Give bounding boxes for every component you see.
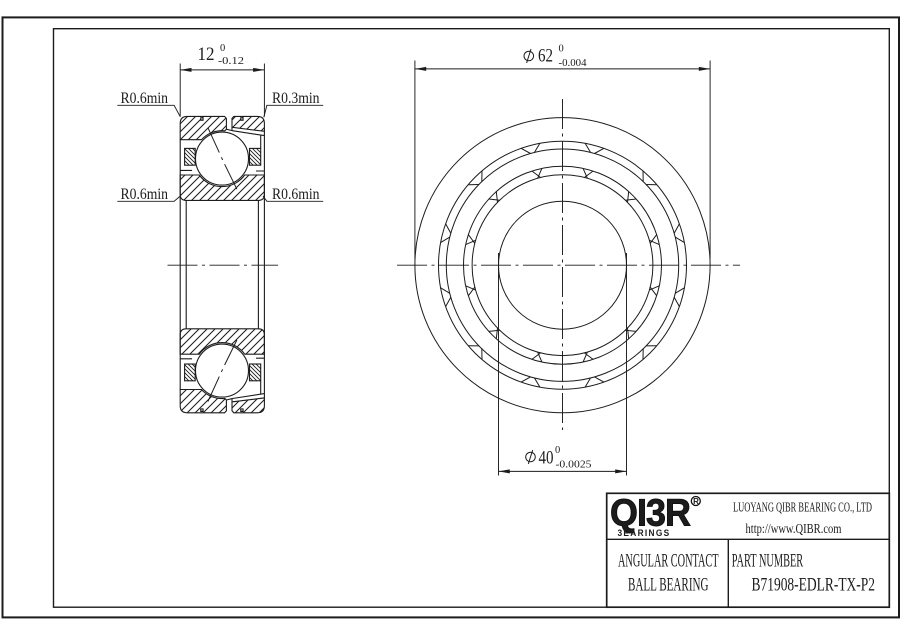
svg-text:R0.6min: R0.6min <box>121 90 169 107</box>
svg-text:R0.3min: R0.3min <box>272 90 320 107</box>
svg-text:R: R <box>693 497 699 506</box>
svg-text:-0.12: -0.12 <box>218 56 244 67</box>
svg-text:3EARINGS: 3EARINGS <box>618 528 671 539</box>
svg-text:0: 0 <box>220 43 225 54</box>
svg-text:BALL BEARING: BALL BEARING <box>628 574 709 595</box>
svg-text:ANGULAR CONTACT: ANGULAR CONTACT <box>618 551 719 572</box>
svg-text:0: 0 <box>555 445 560 456</box>
svg-text:-0.0025: -0.0025 <box>556 460 592 471</box>
svg-text:12: 12 <box>198 44 215 65</box>
svg-text:R0.6min: R0.6min <box>272 186 320 203</box>
svg-text:0: 0 <box>559 44 564 55</box>
svg-text:40: 40 <box>539 448 554 469</box>
svg-text:-0.004: -0.004 <box>559 58 588 69</box>
svg-text:http://www.QIBR.com: http://www.QIBR.com <box>746 522 842 537</box>
svg-text:62: 62 <box>538 45 553 66</box>
svg-text:PART NUMBER: PART NUMBER <box>732 551 804 572</box>
svg-text:R0.6min: R0.6min <box>121 186 169 203</box>
svg-text:LUOYANG QIBR BEARING CO., LTD: LUOYANG QIBR BEARING CO., LTD <box>733 501 872 516</box>
svg-text:B71908-EDLR-TX-P2: B71908-EDLR-TX-P2 <box>752 574 876 595</box>
